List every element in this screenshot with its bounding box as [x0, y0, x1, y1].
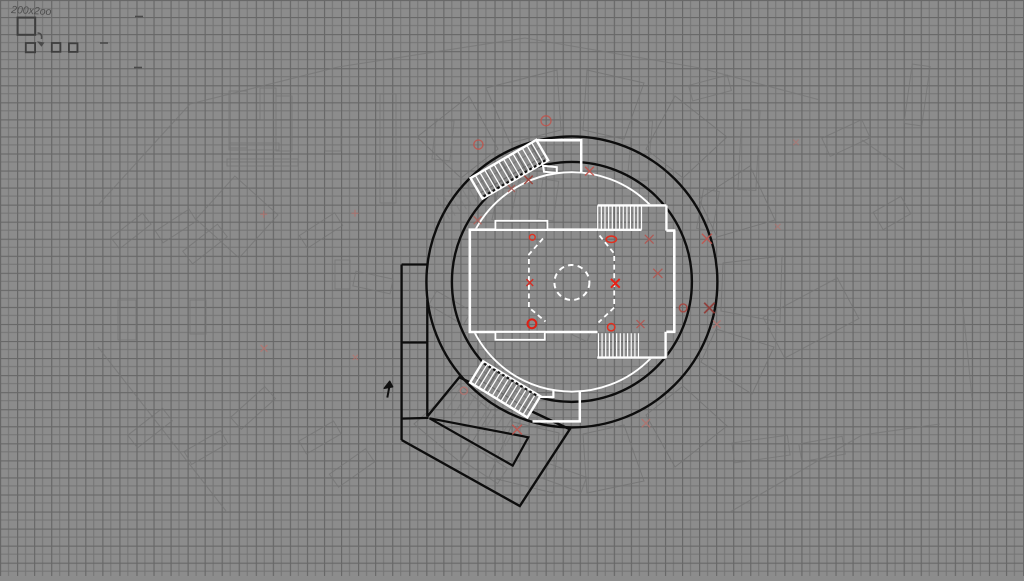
- svg-text:200x2oo: 200x2oo: [10, 4, 52, 18]
